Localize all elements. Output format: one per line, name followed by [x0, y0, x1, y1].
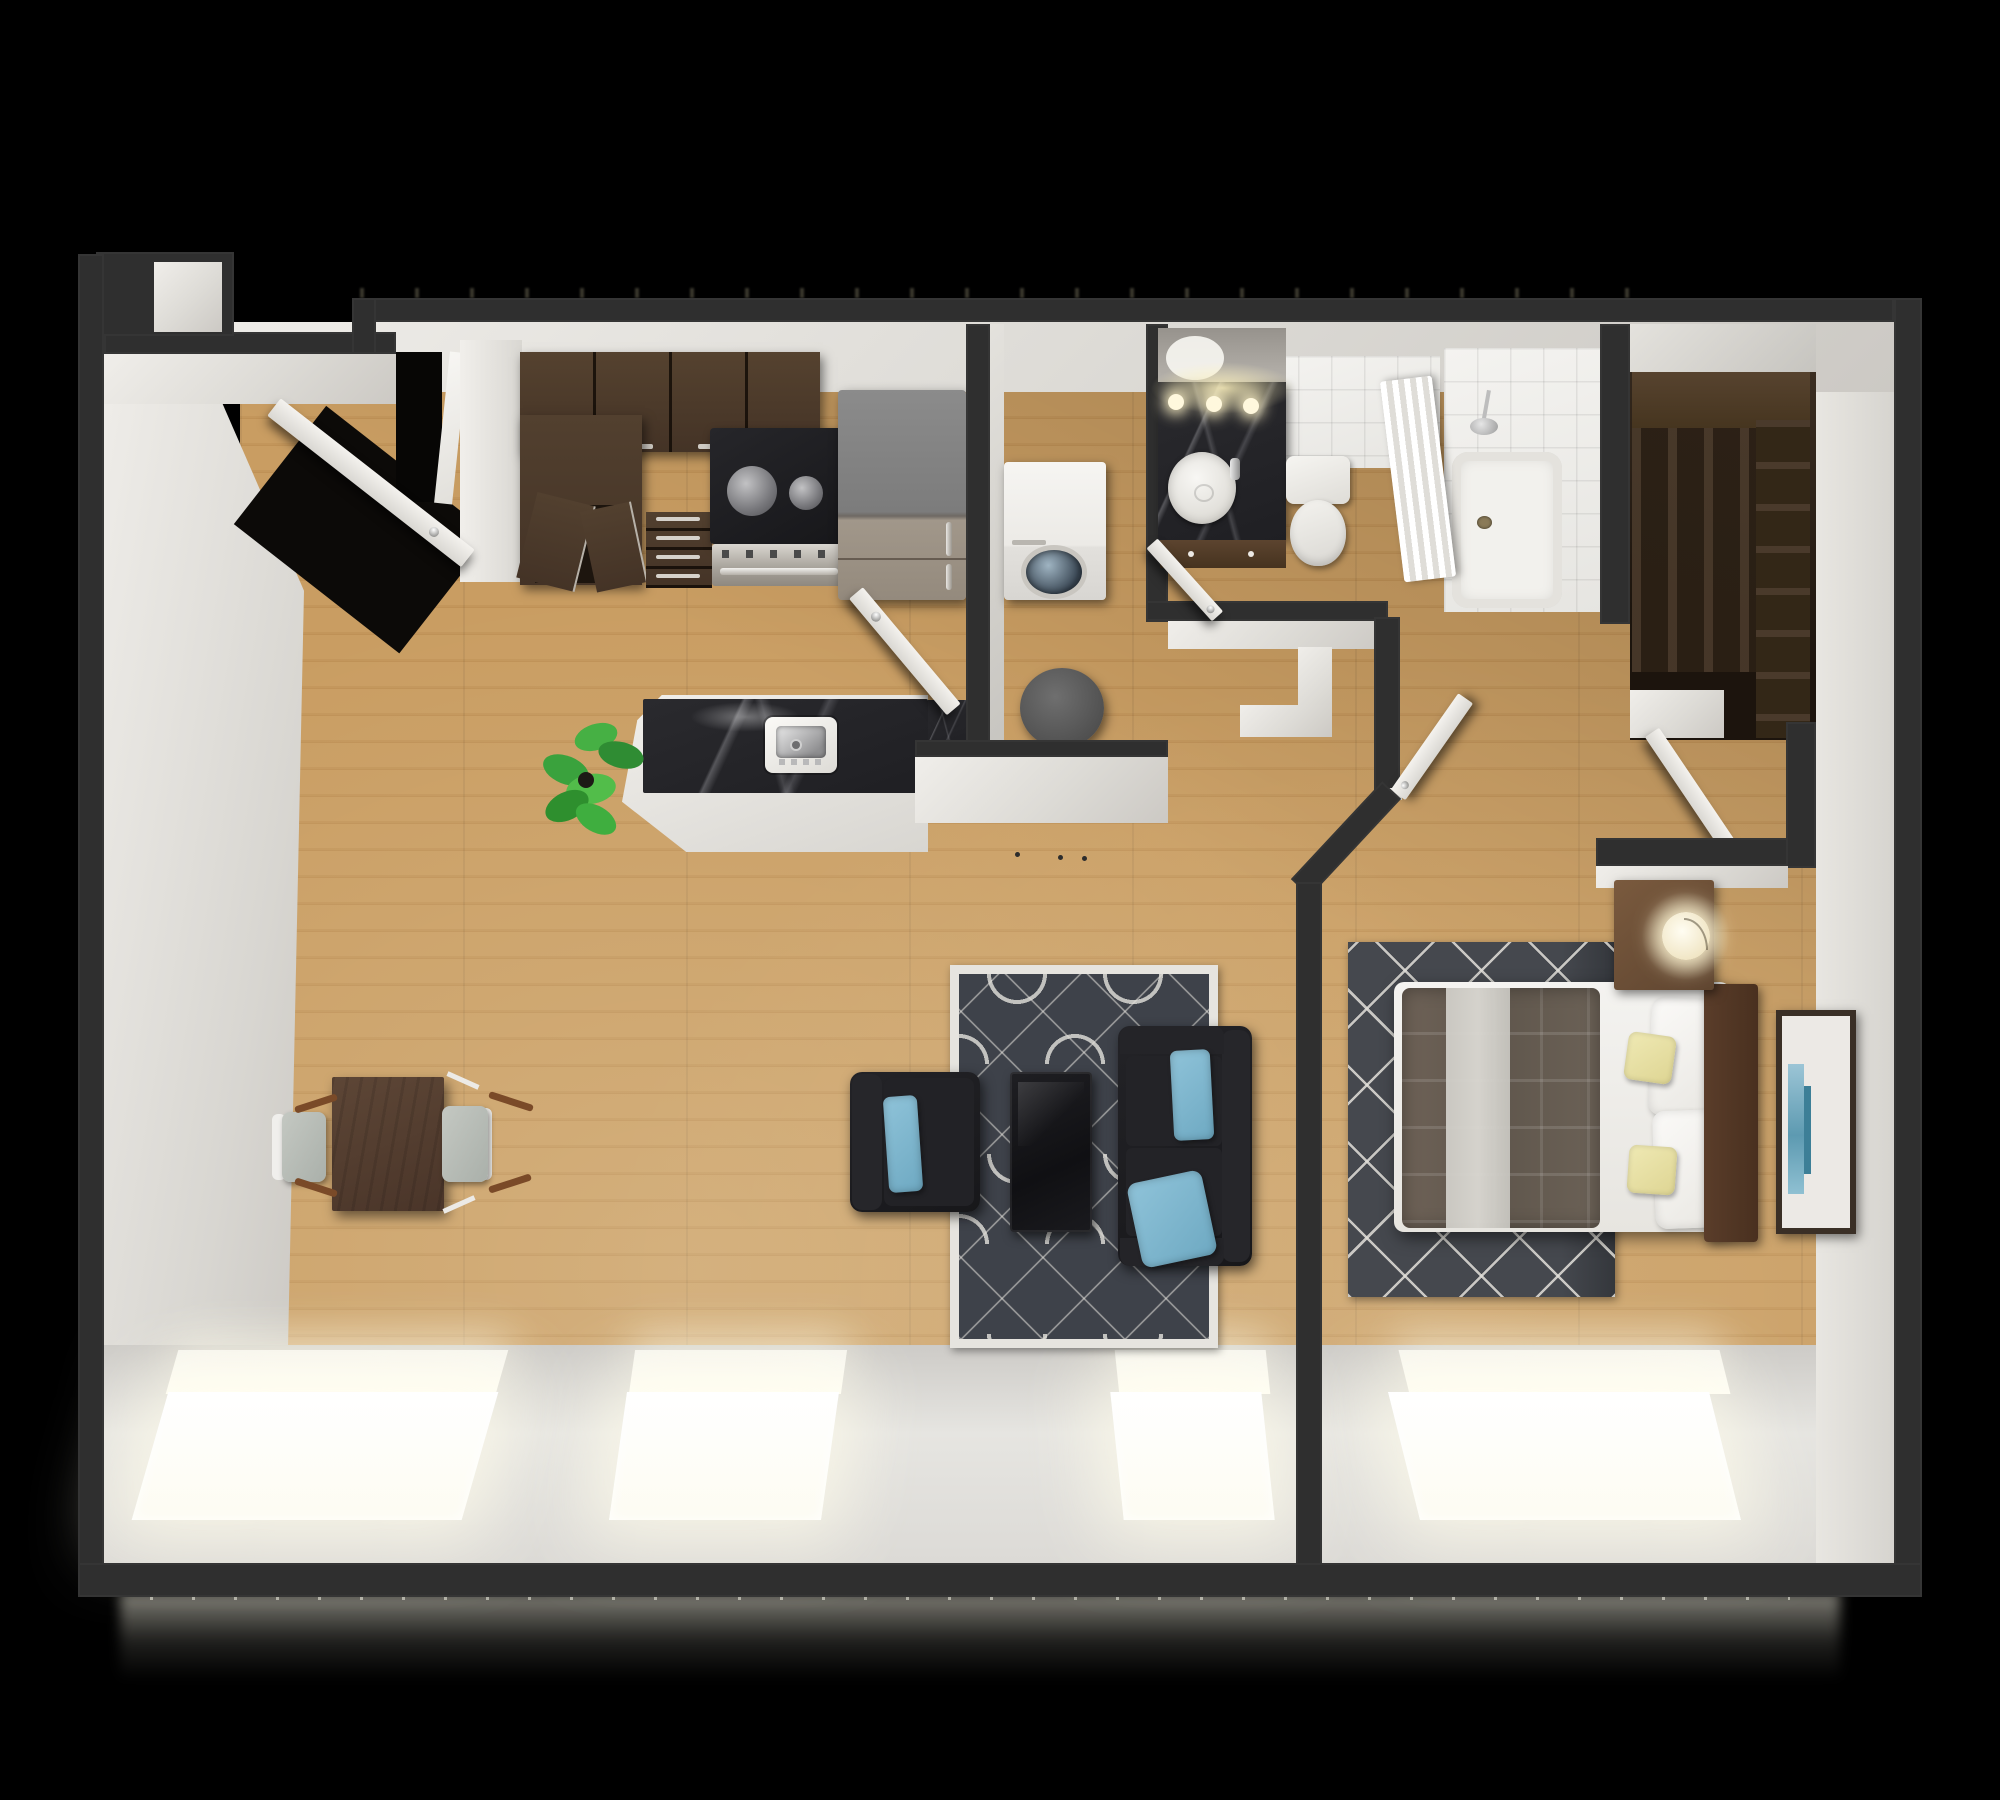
notch-inner-face [154, 262, 222, 332]
room-laundry-nook [1004, 324, 1144, 754]
sofa-back [1222, 1030, 1250, 1262]
outer-wall-left [78, 254, 104, 1595]
window-1-sill [166, 1350, 509, 1394]
entry-north-wall-face [104, 352, 396, 404]
bathroom-south-wall-face [1168, 621, 1383, 649]
top-light-leak [360, 288, 1660, 298]
room-bedroom [1322, 888, 1816, 1347]
room-hallway [1168, 650, 1378, 830]
exterior-light-glow [120, 1592, 1840, 1702]
sofa-arm [1120, 1026, 1224, 1054]
entry-door-handle-icon [427, 525, 441, 539]
kitchen-nook-wall-face [990, 324, 1004, 758]
entry-doorway-void [396, 352, 442, 502]
right-wall-inner-face [1816, 392, 1894, 1565]
room-kitchen [460, 340, 970, 590]
window-1 [132, 1392, 499, 1520]
room-living-dining [240, 600, 960, 1340]
bedroom-west-wall [1296, 882, 1322, 1570]
floor-dot [1015, 852, 1020, 857]
floor-dot [1058, 855, 1063, 860]
room-walk-in-closet [1630, 324, 1816, 738]
outer-wall-right [1894, 298, 1922, 1595]
bathroom-south-wall [1146, 601, 1388, 621]
window-2 [609, 1392, 839, 1520]
window-2-sill [629, 1350, 847, 1394]
window-4-sill [1399, 1350, 1731, 1394]
coffee-table [1010, 1072, 1092, 1232]
bathroom-east-wall [1600, 324, 1630, 624]
bedroom-north-wall [1596, 838, 1788, 866]
bathroom-door-handle-icon [1205, 603, 1216, 614]
room-bathroom [1168, 324, 1598, 604]
closet-bedroom-wall [1786, 722, 1816, 868]
outer-wall-bottom [78, 1563, 1922, 1597]
floor-dot [1082, 856, 1087, 861]
sofa-pillow [1170, 1049, 1215, 1141]
floor-plan-stage [0, 0, 2000, 1800]
bedroom-door-handle-icon [1399, 780, 1410, 791]
coffee-table-glass-sheen [1018, 1082, 1084, 1146]
window-3-sill [1115, 1350, 1271, 1394]
window-4 [1388, 1392, 1741, 1520]
window-3 [1110, 1392, 1274, 1520]
outer-wall-top [352, 298, 1894, 322]
outer-wall-top-step [352, 298, 376, 354]
